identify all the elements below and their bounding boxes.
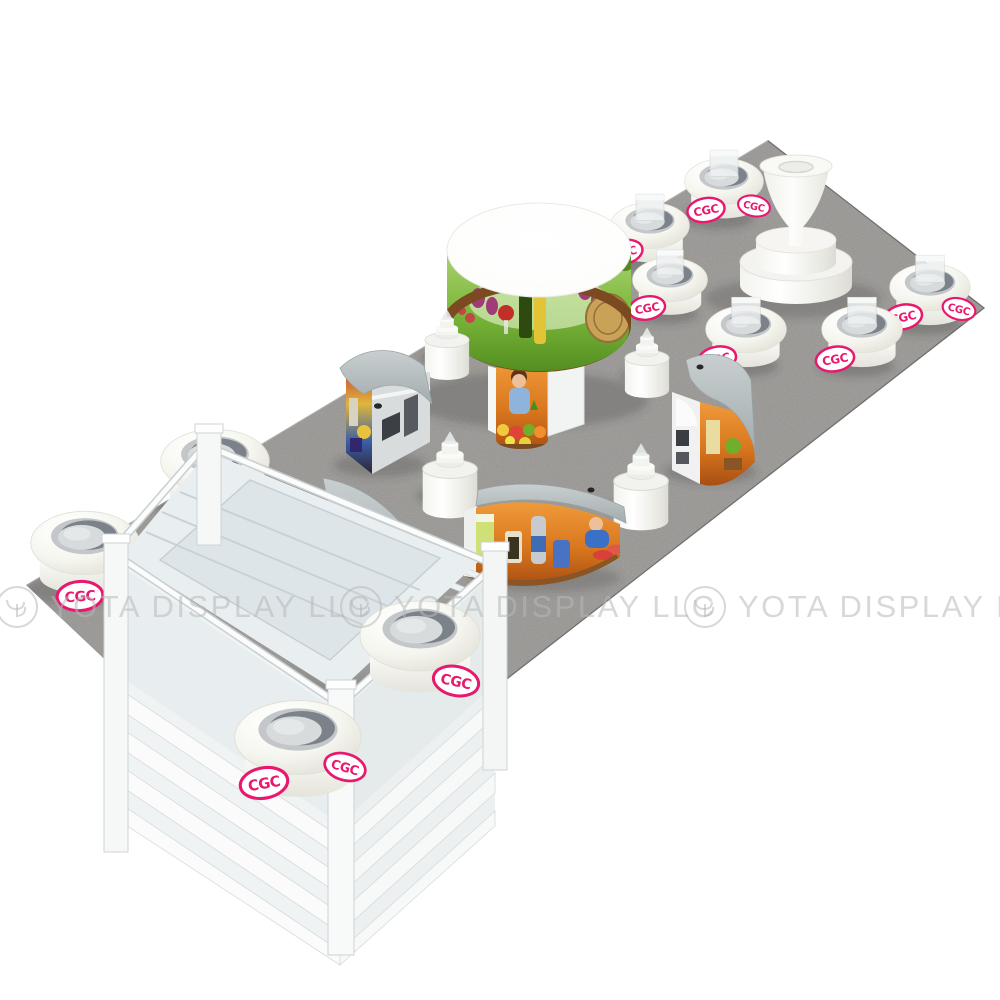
- tower-pedestal-graphic: [496, 360, 548, 452]
- frosted-riser-block: [657, 250, 684, 275]
- shelf-slot: [676, 452, 689, 464]
- grommet-hole: [374, 403, 382, 409]
- grommet-hole: [588, 488, 595, 493]
- grommet-hole: [697, 365, 704, 370]
- frosted-riser-block: [916, 255, 945, 282]
- booth-render: CGC: [0, 0, 1000, 1000]
- frosted-riser-block: [636, 194, 664, 220]
- shelf-slot: [404, 394, 418, 437]
- shelf-slot: [676, 430, 689, 446]
- frosted-riser-block: [732, 297, 761, 324]
- tower-white-top: [447, 203, 631, 297]
- scene-canvas: CGC: [0, 0, 1000, 1000]
- tower-cross-fin: [488, 366, 496, 434]
- pedestal-rim-recess: [779, 162, 813, 173]
- frosted-riser-block: [710, 150, 738, 176]
- frosted-riser-block: [848, 297, 877, 324]
